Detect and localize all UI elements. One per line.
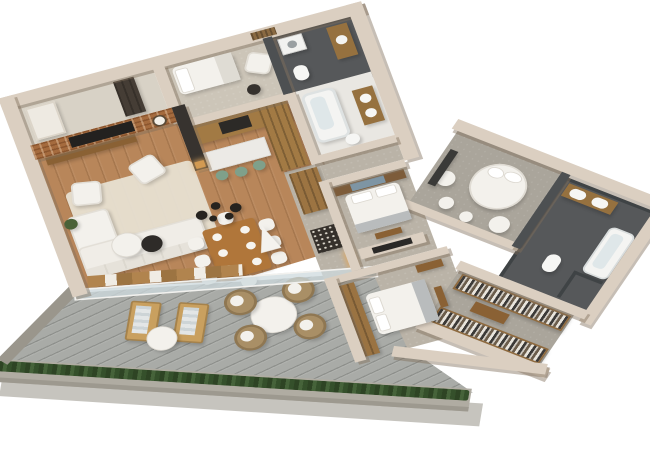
chair-cushion — [228, 294, 245, 308]
lounger-cushion — [179, 307, 199, 335]
vanity-sink — [589, 196, 610, 210]
place-setting — [239, 225, 251, 235]
place-setting — [251, 257, 263, 267]
living-armchair — [70, 180, 102, 206]
cooktop — [218, 115, 252, 135]
bed-pillow — [375, 313, 392, 332]
vanity-sink — [358, 92, 372, 104]
floorplan-render — [0, 0, 650, 450]
vanity-sink — [567, 187, 588, 201]
partition-lit-niche — [194, 160, 206, 169]
washer-door — [286, 39, 298, 49]
bathtub-inner — [309, 95, 336, 131]
chair-cushion — [298, 318, 315, 332]
place-setting — [217, 248, 229, 258]
apartment-plan — [0, 0, 650, 450]
vanity-sink — [364, 107, 378, 119]
bed-pillow — [350, 190, 374, 204]
laundry-sink — [334, 34, 348, 46]
place-setting — [211, 232, 223, 242]
bed-pillow — [374, 184, 398, 198]
bed-pillow — [368, 296, 385, 315]
chair-cushion — [239, 329, 256, 343]
lounger-cushion — [132, 305, 152, 333]
daybed-pillow — [485, 165, 507, 181]
place-setting — [245, 241, 257, 251]
daybed-pillow — [502, 170, 525, 186]
